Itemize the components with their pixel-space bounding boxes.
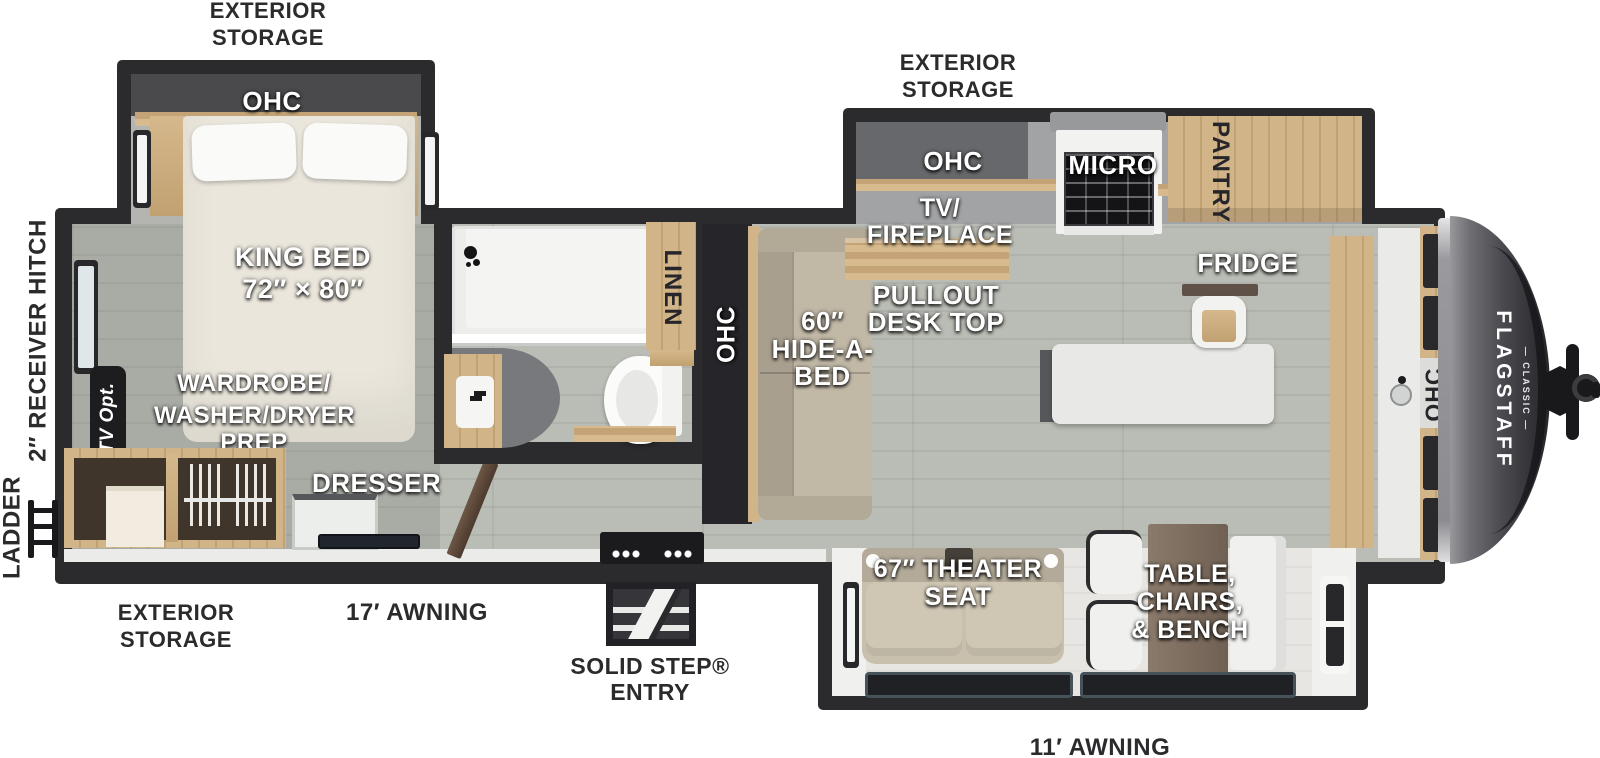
dinette-label-line2: CHAIRS, (1110, 588, 1270, 617)
jack-crank-handle (1592, 382, 1600, 398)
exterior-storage-tl-line1: EXTERIOR (193, 0, 343, 24)
hide-a-bed-armrest-bottom (758, 496, 872, 520)
theater-slide-window-right (1320, 576, 1350, 674)
toilet-shelf (574, 426, 676, 442)
dresser-floor-mat (318, 534, 420, 549)
entry-step-bracket (600, 532, 704, 564)
stove-knob-strip (1064, 226, 1154, 235)
wardrobe-divider (166, 454, 178, 542)
slide-floor-mat-right (1080, 672, 1296, 698)
front-sink (1390, 384, 1412, 406)
exterior-storage-label-top-left: EXTERIOR STORAGE (193, 0, 343, 51)
laundry-basket (106, 486, 164, 547)
micro-label: MICRO (1050, 150, 1176, 181)
pillow-left (191, 122, 297, 182)
brand-logo-sub: — CLASSIC — (1517, 324, 1531, 454)
bedroom-slide-window-right (421, 132, 439, 210)
desk-label-line2: DESK TOP (853, 307, 1019, 338)
hangers-group-1 (190, 464, 224, 526)
shower-head-icon (464, 246, 477, 259)
wardrobe-label-line1: WARDROBE/ (154, 370, 354, 398)
slide-floor-mat-left (865, 672, 1073, 698)
bedroom-slide-window-left (133, 130, 151, 208)
exterior-storage-bl-line1: EXTERIOR (101, 599, 251, 626)
receiver-hitch-label: 2″ RECEIVER HITCH (25, 211, 52, 471)
awning-left-label: 17′ AWNING (327, 599, 507, 626)
wardrobe-label-line2: WASHER/DRYER (154, 402, 354, 430)
exterior-storage-label-top-right: EXTERIOR STORAGE (883, 49, 1033, 103)
dinette-label-line1: TABLE, (1110, 560, 1270, 589)
ladder-label: LADDER (0, 463, 26, 593)
awning-right-label: 11′ AWNING (1010, 734, 1190, 758)
hangers-group-2 (236, 464, 270, 526)
pantry-label: PANTRY (1206, 117, 1234, 227)
linen-step (650, 350, 694, 366)
bedroom-rear-window (74, 260, 98, 374)
hide-a-bed-label-line3: BED (745, 361, 900, 392)
tv-fireplace-label-line1: TV/ (858, 194, 1022, 223)
nightstand-left (150, 116, 184, 216)
kitchen-ohc-shelf (856, 179, 1071, 191)
entry-label: SOLID STEP® ENTRY (560, 653, 740, 705)
front-cabinet-run (1330, 236, 1374, 548)
front-faucet-icon (1398, 376, 1406, 384)
shower-glass-door (452, 334, 666, 346)
entry-steps-icon (606, 582, 696, 646)
exterior-storage-bl-line2: STORAGE (101, 626, 251, 653)
entry-label-line2: ENTRY (560, 679, 740, 705)
tv-fireplace-label-line2: FIREPLACE (858, 221, 1022, 250)
exterior-storage-tl-line2: STORAGE (193, 24, 343, 51)
fridge-label: FRIDGE (1185, 248, 1311, 279)
theater-label-line2: SEAT (858, 583, 1058, 612)
entry-label-line1: SOLID STEP® (560, 653, 740, 679)
pillow-right (302, 122, 408, 182)
shower (452, 226, 666, 338)
kitchen-ohc-label: OHC (878, 146, 1028, 177)
brand-logo: FLAGSTAFF (1489, 270, 1515, 510)
king-bed-label-line2: 72″ × 80″ (203, 274, 403, 305)
pantry-fridge-cabinet (1168, 116, 1362, 222)
king-bed-label-line1: KING BED (203, 242, 403, 273)
bath-faucet-icon (470, 396, 482, 401)
ladder-icon-rungs (28, 508, 58, 513)
theater-slide-window-left (843, 582, 859, 668)
stool-table-top (1182, 284, 1258, 296)
kitchen-island (1052, 344, 1274, 424)
bottom-wall-sill (64, 549, 826, 562)
bed-ohc-label: OHC (197, 86, 347, 117)
exterior-storage-label-bottom-left: EXTERIOR STORAGE (101, 599, 251, 653)
floorplan-canvas: OHC KING BED 72″ × 80″ TV Opt. WARDROBE/… (0, 0, 1600, 758)
exterior-storage-tr-line2: STORAGE (883, 76, 1033, 103)
bar-stool-seat (1202, 310, 1236, 342)
range-hood (1050, 112, 1166, 132)
theater-label-line1: 67″ THEATER (858, 555, 1058, 584)
toilet-bowl-inner (616, 370, 658, 430)
hall-ohc-label: OHC (713, 285, 742, 385)
dinette-label-line3: & BENCH (1110, 616, 1270, 645)
linen-label: LINEN (658, 236, 686, 340)
exterior-storage-tr-line1: EXTERIOR (883, 49, 1033, 76)
bath-sink (456, 376, 494, 428)
linen-cabinet: LINEN (646, 222, 696, 350)
